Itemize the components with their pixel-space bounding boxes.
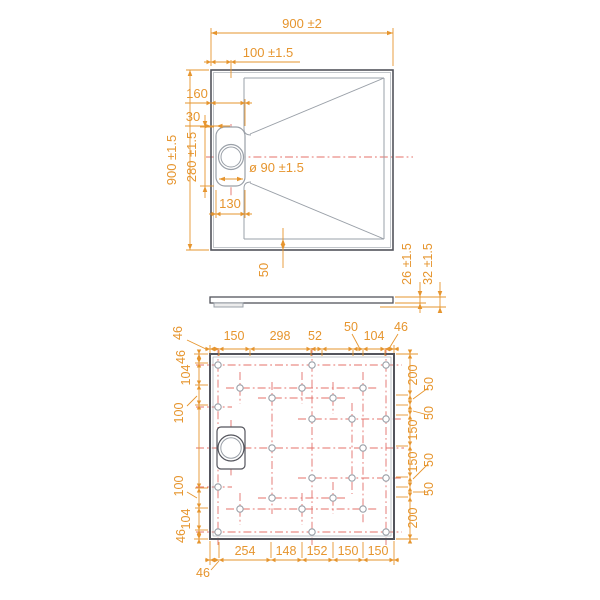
chain-label: 46 bbox=[174, 529, 188, 543]
chain-tick bbox=[408, 401, 412, 410]
dim-label-drain-offset: 100 ±1.5 bbox=[243, 45, 294, 60]
mounting-boss bbox=[309, 362, 315, 368]
chain-label: 150 bbox=[406, 452, 420, 473]
chain-tick bbox=[298, 558, 307, 562]
chain-label: 150 bbox=[224, 329, 245, 343]
leader-line bbox=[187, 492, 197, 498]
chain-label: 104 bbox=[179, 365, 193, 386]
chain-label: 150 bbox=[406, 420, 420, 441]
mounting-boss bbox=[360, 385, 366, 391]
chain-tick bbox=[329, 558, 338, 562]
dim-arrow bbox=[387, 31, 393, 36]
chain-tick bbox=[267, 558, 276, 562]
chain-label: 52 bbox=[308, 329, 322, 343]
dim-arrow bbox=[211, 31, 217, 36]
mounting-boss bbox=[309, 475, 315, 481]
mounting-boss bbox=[360, 445, 366, 451]
chain-label: 104 bbox=[179, 509, 193, 530]
chain-label: 104 bbox=[364, 329, 385, 343]
mounting-boss bbox=[330, 495, 336, 501]
chain-label: 50 bbox=[422, 453, 436, 467]
dim-label-rim: 50 bbox=[256, 263, 271, 277]
dim-label-thickness: 26 ±1.5 bbox=[400, 243, 414, 285]
chain-label: 150 bbox=[338, 544, 359, 558]
dim-label-pocket-gap: 30 bbox=[186, 109, 200, 124]
chain-label: 254 bbox=[235, 544, 256, 558]
dim-arrow bbox=[188, 244, 193, 250]
side-profile bbox=[210, 297, 393, 303]
slope-line bbox=[250, 78, 384, 134]
mounting-boss bbox=[383, 416, 389, 422]
chain-label: 298 bbox=[270, 329, 291, 343]
dim-arrow bbox=[418, 303, 423, 309]
chain-label: 46 bbox=[196, 566, 210, 580]
chain-tick bbox=[359, 558, 368, 562]
mounting-boss bbox=[383, 475, 389, 481]
dim-arrow bbox=[281, 244, 286, 250]
chain-tick bbox=[408, 473, 412, 482]
leader-line bbox=[187, 340, 208, 350]
drawing-page: 900 ±2100 ±1.516030900 ±1.5280 ±1.5130ø … bbox=[0, 0, 600, 600]
mounting-boss bbox=[237, 506, 243, 512]
mounting-boss bbox=[269, 445, 275, 451]
chain-label: 50 bbox=[422, 406, 436, 420]
drain-pocket-fillet bbox=[244, 182, 251, 188]
mounting-boss bbox=[215, 529, 221, 535]
dim-label-pocket-width: 130 bbox=[219, 196, 241, 211]
mounting-boss bbox=[299, 385, 305, 391]
mounting-boss bbox=[299, 506, 305, 512]
chain-tick bbox=[408, 411, 412, 420]
chain-tick bbox=[408, 483, 412, 492]
mounting-boss bbox=[269, 495, 275, 501]
leader-line bbox=[211, 561, 219, 570]
chain-label: 200 bbox=[406, 508, 420, 529]
mounting-boss bbox=[309, 416, 315, 422]
chain-label: 46 bbox=[174, 350, 188, 364]
chain-tick bbox=[408, 493, 412, 502]
chain-label: 46 bbox=[171, 326, 185, 340]
dim-label-total-height: 32 ±1.5 bbox=[421, 243, 435, 285]
dim-arrow bbox=[188, 70, 193, 76]
dim-label-pocket-right: 160 bbox=[186, 86, 208, 101]
side-profile-drain-boss bbox=[214, 303, 243, 307]
chain-label: 46 bbox=[394, 320, 408, 334]
chain-label: 152 bbox=[307, 544, 328, 558]
mounting-boss bbox=[349, 475, 355, 481]
drain-hole-outer bbox=[219, 145, 244, 170]
chain-label: 200 bbox=[406, 365, 420, 386]
chain-label: 100 bbox=[172, 403, 186, 424]
bottom-drain-outer bbox=[218, 435, 244, 461]
chain-tick bbox=[408, 442, 412, 451]
mounting-boss bbox=[383, 362, 389, 368]
mounting-boss bbox=[237, 385, 243, 391]
mounting-boss bbox=[215, 484, 221, 490]
technical-drawing: 900 ±2100 ±1.516030900 ±1.5280 ±1.5130ø … bbox=[0, 0, 600, 600]
dim-label-pocket-height: 280 ±1.5 bbox=[184, 132, 199, 183]
dim-label-drain-diameter: ø 90 ±1.5 bbox=[249, 160, 304, 175]
mounting-boss bbox=[330, 395, 336, 401]
chain-label: 150 bbox=[368, 544, 389, 558]
mounting-boss bbox=[383, 529, 389, 535]
leader-line bbox=[413, 388, 428, 399]
mounting-boss bbox=[215, 362, 221, 368]
dim-arrow bbox=[217, 124, 223, 129]
mounting-boss bbox=[215, 404, 221, 410]
mounting-boss bbox=[349, 416, 355, 422]
slope-line bbox=[250, 183, 384, 239]
chain-tick bbox=[408, 391, 412, 400]
dim-arrow bbox=[203, 186, 208, 192]
dim-label-width: 900 ±2 bbox=[282, 16, 322, 31]
mounting-boss bbox=[269, 395, 275, 401]
chain-label: 50 bbox=[422, 482, 436, 496]
leader-line bbox=[352, 334, 359, 347]
mounting-boss bbox=[360, 506, 366, 512]
dim-arrow bbox=[438, 307, 443, 313]
dim-label-height: 900 ±1.5 bbox=[164, 135, 179, 186]
mounting-boss bbox=[309, 529, 315, 535]
chain-label: 148 bbox=[276, 544, 297, 558]
leader-line bbox=[187, 396, 197, 406]
chain-label: 50 bbox=[422, 377, 436, 391]
dim-arrow bbox=[438, 291, 443, 297]
dim-arrow bbox=[418, 291, 423, 297]
chain-label: 50 bbox=[344, 320, 358, 334]
chain-label: 100 bbox=[172, 476, 186, 497]
